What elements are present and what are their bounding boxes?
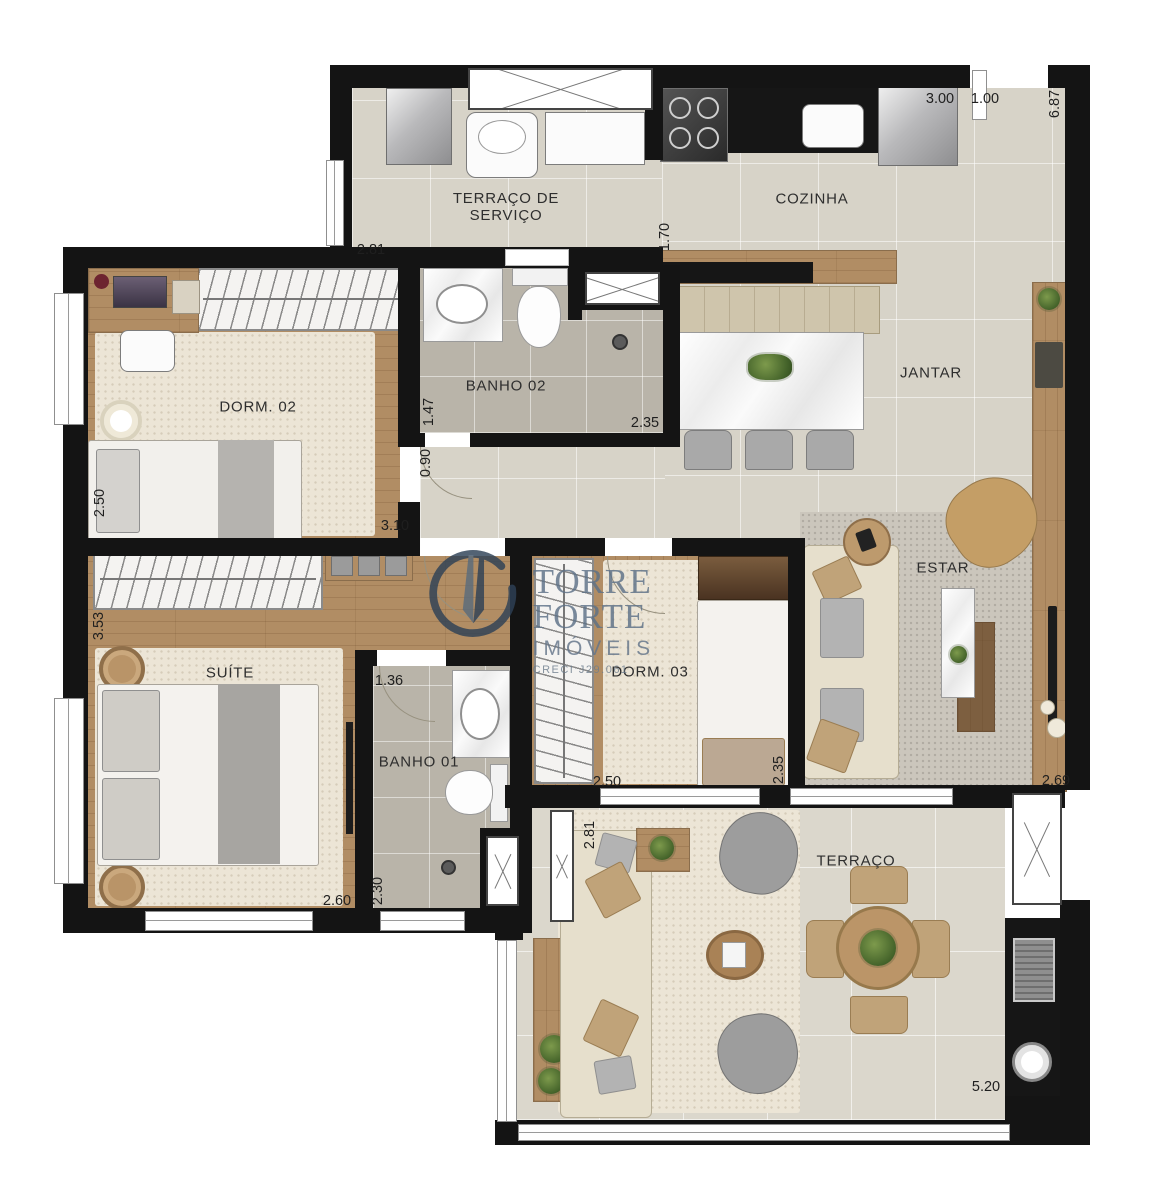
- terrace-table-plant: [860, 930, 896, 966]
- dresser-drawer: [358, 556, 380, 576]
- dim-2.81-servico: 2.81: [357, 242, 385, 258]
- dining-table: [676, 332, 864, 430]
- window-estar-terraco: [790, 788, 953, 805]
- watermark: TORRE FORTE IMÓVEIS CRECI J29.061: [428, 548, 758, 658]
- pillow-suite: [102, 778, 160, 860]
- terrace-chair: [850, 866, 908, 904]
- burner: [669, 97, 691, 119]
- dim-3.00: 3.00: [926, 91, 954, 107]
- burner: [697, 97, 719, 119]
- coffee-table-plant: [950, 646, 967, 663]
- shower-drain-banho02: [612, 334, 628, 350]
- side-table-dorm02: [100, 400, 142, 442]
- terrace-chair: [850, 996, 908, 1034]
- dim-2.35-banho02: 2.35: [631, 415, 659, 431]
- wall: [355, 650, 377, 666]
- vent-banho02: [505, 249, 569, 266]
- dim-3.10: 3.10: [381, 518, 409, 534]
- dim-2.35-dorm03: 2.35: [771, 756, 787, 784]
- dim-2.50-dorm02: 2.50: [92, 489, 108, 517]
- sideboard-tray: [1035, 342, 1063, 388]
- torre-forte-logo-icon: [428, 548, 525, 652]
- shaft-terraco: [550, 810, 574, 922]
- sideboard-plant: [1038, 288, 1060, 310]
- tray-terraco: [722, 942, 746, 968]
- blanket-suite: [218, 684, 280, 864]
- dining-bench: [678, 286, 880, 334]
- nightstand-suite-bottom: [99, 864, 145, 910]
- service-counter: [545, 112, 645, 165]
- room-label-banho01: BANHO 01: [379, 754, 460, 771]
- dim-2.50-dorm03: 2.50: [593, 774, 621, 790]
- stove: [660, 88, 728, 162]
- coffee-table-marble: [941, 588, 975, 698]
- wall: [1005, 1096, 1090, 1124]
- window-suite-side: [54, 698, 84, 884]
- tv-panel-suite: [346, 722, 353, 834]
- dim-1.00: 1.00: [971, 91, 999, 107]
- sofa-throw: [820, 598, 864, 658]
- room-label-cozinha: COZINHA: [775, 191, 848, 208]
- toilet-banho02: [517, 286, 561, 348]
- window-dorm02: [54, 293, 84, 425]
- room-label-servico: TERRAÇO DE SERVIÇO: [453, 190, 559, 224]
- washing-machine: [386, 88, 452, 165]
- dim-0.90: 0.90: [418, 449, 434, 477]
- wall: [495, 908, 523, 940]
- dim-3.53: 3.53: [91, 612, 107, 640]
- dim-6.87: 6.87: [1047, 90, 1063, 118]
- room-label-suite: SUÍTE: [206, 665, 254, 682]
- wall: [1060, 900, 1090, 1122]
- room-label-banho02: BANHO 02: [466, 378, 547, 395]
- decor-vase: [1040, 700, 1055, 715]
- sink-banho02: [436, 284, 488, 324]
- laptop: [113, 276, 167, 308]
- shaft-banho02: [585, 272, 660, 305]
- tank-basin: [478, 120, 526, 154]
- blanket-dorm02: [218, 440, 274, 539]
- dining-chair: [684, 430, 732, 470]
- window-servico: [326, 160, 344, 246]
- wall: [663, 265, 680, 447]
- dim-1.70: 1.70: [657, 223, 673, 251]
- burner: [669, 127, 691, 149]
- floor-plan: TERRAÇO DE SERVIÇO COZINHA DORM. 02 BANH…: [0, 0, 1166, 1200]
- dresser-drawer: [385, 556, 407, 576]
- desk-chair: [120, 330, 175, 372]
- watermark-text: TORRE FORTE IMÓVEIS CRECI J29.061: [533, 564, 758, 676]
- dim-2.30: 2.30: [370, 877, 386, 905]
- dim-2.81-terraco: 2.81: [582, 821, 598, 849]
- door-gap-dorm02: [400, 447, 420, 502]
- watermark-subtitle: IMÓVEIS: [533, 637, 758, 661]
- toilet-banho01: [445, 770, 493, 815]
- wall: [398, 265, 420, 447]
- corner-table-plant: [650, 836, 674, 860]
- dining-chair: [806, 430, 854, 470]
- dim-2.60: 2.60: [323, 893, 351, 909]
- window-suite-bottom: [145, 911, 313, 931]
- window-banho01: [380, 911, 465, 931]
- window-terraco-left: [497, 940, 517, 1122]
- desk-frame: [172, 280, 200, 314]
- window-terraco-bottom: [518, 1124, 1010, 1141]
- window-dorm03-terraco: [600, 788, 760, 805]
- dim-1.47: 1.47: [421, 398, 437, 426]
- wall: [1065, 65, 1090, 790]
- shaft-grill: [1012, 793, 1062, 905]
- dim-5.20: 5.20: [972, 1079, 1000, 1095]
- pillow-suite: [102, 690, 160, 772]
- room-label-jantar: JANTAR: [900, 365, 962, 382]
- dresser-drawer: [331, 556, 353, 576]
- closet-dorm02: [197, 268, 410, 331]
- dining-chair: [745, 430, 793, 470]
- grill-sink: [1012, 1042, 1052, 1082]
- desk-plant: [94, 274, 109, 289]
- closet-suite: [93, 548, 323, 610]
- dim-2.69: 2.69: [1042, 773, 1070, 789]
- table-plant: [748, 354, 792, 380]
- wall: [788, 556, 805, 788]
- grill: [1013, 938, 1055, 1002]
- decor-vase: [1047, 718, 1067, 738]
- upper-cabinet-window: [468, 68, 653, 110]
- door-gap-banho02: [425, 433, 470, 447]
- toilet-tank-banho02: [512, 268, 568, 286]
- watermark-brand: TORRE FORTE: [533, 564, 758, 634]
- room-label-estar: ESTAR: [917, 560, 970, 577]
- burner: [697, 127, 719, 149]
- kitchen-sink: [802, 104, 864, 148]
- sink-banho01: [460, 688, 500, 740]
- dim-1.36: 1.36: [375, 673, 403, 689]
- watermark-license: CRECI J29.061: [533, 664, 758, 676]
- wall: [63, 538, 418, 556]
- room-label-dorm02: DORM. 02: [219, 399, 296, 416]
- room-label-terraco: TERRAÇO: [817, 853, 896, 870]
- wall: [505, 785, 1065, 808]
- shaft-banho01: [486, 836, 519, 906]
- sofa-pillow: [593, 1055, 636, 1095]
- shower-drain-banho01: [441, 860, 456, 875]
